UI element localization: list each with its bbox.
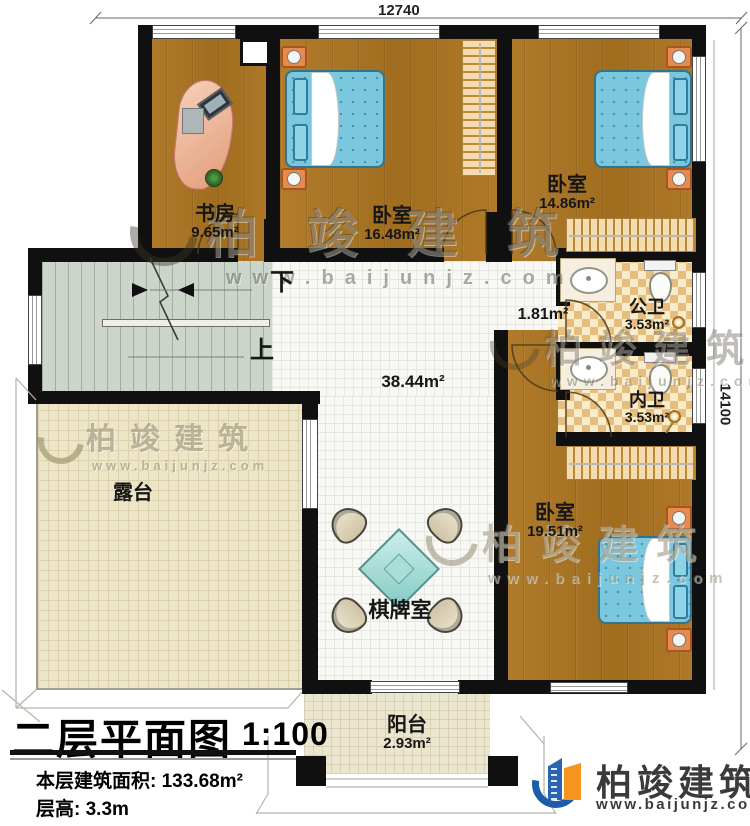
wardrobe: [566, 218, 696, 252]
nightstand: [666, 46, 692, 68]
nook-area-label: 1.81m²: [488, 306, 598, 324]
room-name: 内卫: [592, 390, 702, 410]
pc-tower-icon: [182, 108, 204, 134]
room-area: 2.93m²: [352, 736, 462, 753]
bed-double: [594, 70, 692, 168]
wall-niche: [240, 39, 270, 66]
plant-icon: [206, 170, 222, 186]
bed-sheet: [311, 72, 339, 166]
bed-double: [285, 70, 385, 168]
stairs-down-text: 下: [262, 270, 302, 297]
bed-double: [598, 536, 692, 624]
dimension-height: 14100: [716, 384, 733, 426]
drawing-scale: 1:100: [242, 716, 329, 753]
stair-handrail: [102, 319, 270, 327]
wall-study-bottom: [138, 248, 238, 262]
room-area: 3.53m²: [592, 410, 702, 426]
pillow: [293, 124, 308, 161]
room-area: 9.65m²: [160, 225, 270, 242]
room-area: 1.81m²: [488, 306, 598, 324]
study-label: 书房 9.65m²: [160, 203, 270, 242]
wardrobe: [462, 40, 496, 176]
nightstand: [281, 168, 307, 190]
floor-area-value: 133.68m²: [162, 771, 243, 792]
bath-private-label: 内卫 3.53m²: [592, 390, 702, 426]
room-area: 3.53m²: [592, 317, 702, 333]
pillow: [673, 543, 688, 577]
window-bedroom-master-south: [550, 682, 628, 693]
wall-below-stairs: [28, 391, 320, 404]
floor-height-line: 层高: 3.3m: [36, 794, 129, 821]
nightstand: [666, 168, 692, 190]
nightstand: [666, 506, 692, 530]
dimension-width: 12740: [378, 2, 420, 19]
wardrobe: [566, 446, 696, 480]
balcony-sliding-door: [370, 681, 460, 693]
room-name: 卧室: [500, 502, 610, 524]
room-name: 阳台: [352, 714, 462, 736]
bedroom-mid-label: 卧室 16.48m²: [337, 205, 447, 244]
wall-gameroom-bottom-left: [302, 680, 372, 694]
room-name: 卧室: [512, 174, 622, 196]
wall-step-horizontal: [28, 248, 152, 262]
bedroom-right-label: 卧室 14.86m²: [512, 174, 622, 213]
wall-bedrooms-divider: [497, 39, 512, 219]
wall-terrace-right-lower: [302, 508, 318, 694]
balcony-column-left: [296, 756, 326, 786]
room-area: 38.44m²: [358, 372, 468, 391]
stairs-up-text: 上: [242, 338, 282, 365]
logo-building-orange-icon: [564, 763, 581, 800]
window-bedroom-mid-top: [318, 25, 440, 39]
hall-area-label: 38.44m²: [358, 372, 468, 391]
bath-public-label: 公卫 3.53m²: [592, 297, 702, 333]
toilet-tank-icon: [644, 352, 676, 363]
title-underline-thin: [10, 758, 296, 760]
toilet-tank-icon: [644, 260, 676, 271]
room-name: 书房: [160, 203, 270, 225]
wall-study-left: [138, 25, 152, 261]
window-bedroom-right-east: [692, 56, 706, 162]
pillow: [673, 78, 688, 115]
wall-bath-private-bottom: [556, 432, 706, 446]
floor-height-label: 层高:: [36, 799, 80, 820]
bed-sheet: [642, 538, 670, 622]
nightstand: [666, 628, 692, 652]
bedroom-master-label: 卧室 19.51m²: [500, 502, 610, 541]
sink-counter: [560, 348, 616, 390]
room-name: 公卫: [592, 297, 702, 317]
window-study-top: [152, 25, 236, 39]
floor-area-label: 本层建筑面积:: [36, 771, 156, 792]
terrace-label: 露台: [78, 482, 188, 504]
terrace-floor: [36, 400, 302, 690]
room-area: 19.51m²: [500, 524, 610, 541]
floor-height-value: 3.3m: [86, 799, 129, 820]
room-name: 棋牌室: [345, 599, 455, 623]
stairs-up-label: 上: [242, 338, 282, 365]
title-underline: [10, 750, 296, 755]
terrace-door: [302, 419, 318, 509]
pillow: [673, 585, 688, 619]
pillow: [293, 78, 308, 115]
balcony-column-right: [488, 756, 518, 786]
sink-counter: [560, 258, 616, 302]
balcony-label: 阳台 2.93m²: [352, 714, 462, 753]
company-website: www.baijunjz.com: [596, 796, 750, 813]
floor-plan-canvas: 12740 14100 书房 9.65m² 卧室 16.48m² 卧室 14.8…: [0, 0, 750, 826]
window-stairwell-west: [28, 295, 42, 365]
room-name: 卧室: [337, 205, 447, 227]
room-area: 14.86m²: [512, 196, 622, 213]
room-area: 16.48m²: [337, 227, 447, 244]
nightstand: [281, 46, 307, 68]
sink-icon: [570, 356, 608, 383]
stairs-down-label: 下: [262, 270, 302, 297]
wall-bedroom-mid-bottom: [264, 248, 444, 262]
floor-area-line: 本层建筑面积: 133.68m²: [36, 766, 243, 793]
wall-door-stub: [486, 212, 512, 262]
sink-icon: [570, 267, 608, 294]
wall-terrace-right-upper: [302, 391, 318, 419]
room-name: 露台: [78, 482, 188, 504]
pillow: [673, 124, 688, 161]
wall-study-bedroom-divider: [266, 39, 280, 221]
game-room-label: 棋牌室: [345, 599, 455, 623]
window-bedroom-right-top: [538, 25, 660, 39]
bed-sheet: [642, 72, 670, 166]
